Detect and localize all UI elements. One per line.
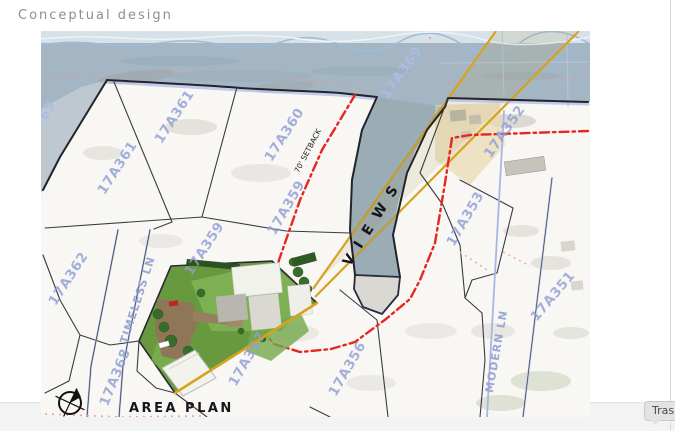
trash-tooltip-label: Trash <box>652 404 675 417</box>
area-plan-label: AREA PLAN <box>129 401 234 416</box>
trash-tooltip[interactable]: Trash <box>644 401 675 421</box>
panel-divider <box>670 0 671 430</box>
concept-map-image[interactable]: VIEWS 70' SETBACK 6917A36917A36117A36117… <box>41 31 590 417</box>
screen: { "page": { "title": "Conceptual design"… <box>0 0 675 430</box>
page-title: Conceptual design <box>18 8 173 23</box>
